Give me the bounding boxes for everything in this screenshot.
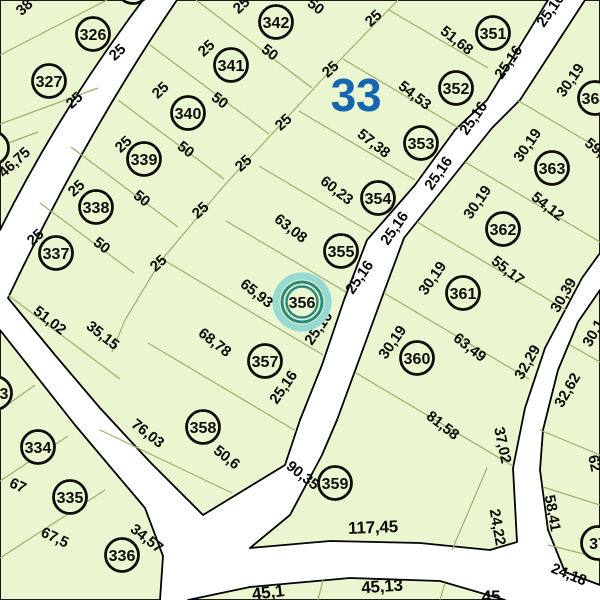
parcel-number: 342 — [263, 15, 290, 32]
parcel-number: 357 — [252, 354, 279, 371]
parcel-number: 333 — [0, 386, 8, 403]
parcel-marker-337[interactable]: 337 — [40, 237, 73, 270]
parcel-marker-340[interactable]: 340 — [172, 97, 205, 130]
parcel-number: 338 — [83, 200, 110, 217]
parcel-marker-334[interactable]: 334 — [22, 431, 55, 464]
parcel-number: 363 — [539, 161, 566, 178]
parcel-number: 364 — [582, 91, 600, 108]
parcel-number: 352 — [443, 81, 470, 98]
parcel-marker-335[interactable]: 335 — [54, 481, 87, 514]
parcel-marker-359[interactable]: 359 — [319, 467, 352, 500]
parcel-marker-339[interactable]: 339 — [128, 143, 161, 176]
parcel-marker-361[interactable]: 361 — [447, 277, 480, 310]
parcel-number: 326 — [80, 27, 107, 44]
parcel-number: 327 — [36, 74, 63, 91]
selected-parcel-marker[interactable]: 356 — [276, 276, 328, 328]
parcel-number: 359 — [322, 476, 349, 493]
parcel-marker-358[interactable]: 358 — [187, 411, 220, 444]
block-number-label: 33 — [331, 69, 382, 121]
parcel-number: 334 — [25, 440, 52, 457]
parcel-number: 358 — [190, 420, 217, 437]
parcel-marker-355[interactable]: 355 — [325, 235, 358, 268]
parcel-marker-364[interactable]: 364 — [579, 82, 600, 115]
parcel-number: 353 — [408, 136, 435, 153]
parcel-number: 340 — [175, 106, 202, 123]
parcel-number: 37 — [589, 536, 600, 553]
parcel-number: 337 — [43, 246, 70, 263]
parcel-number: 336 — [109, 548, 136, 565]
parcel-marker-338[interactable]: 338 — [80, 191, 113, 224]
parcel-number: 362 — [490, 222, 517, 239]
dimension-label: 45,1 — [251, 581, 285, 600]
parcel-marker-327[interactable]: 327 — [33, 65, 66, 98]
parcel-marker-354[interactable]: 354 — [362, 182, 395, 215]
parcel-marker-326[interactable]: 326 — [77, 18, 110, 51]
parcel-marker-342[interactable]: 342 — [260, 6, 293, 39]
dimension-label: 117,45 — [348, 517, 398, 538]
parcel-marker-360[interactable]: 360 — [401, 342, 434, 375]
parcel-marker-362[interactable]: 362 — [487, 213, 520, 246]
parcel-number: 351 — [480, 26, 507, 43]
parcel-number: 361 — [450, 286, 477, 303]
cadastral-map-viewport[interactable]: 38252546,7525252525252525252525252550505… — [0, 0, 600, 600]
parcel-marker-353[interactable]: 353 — [405, 127, 438, 160]
parcel-marker-341[interactable]: 341 — [215, 49, 248, 82]
parcel-number: 355 — [328, 244, 355, 261]
parcel-number: 341 — [218, 58, 245, 75]
parcel-marker-352[interactable]: 352 — [440, 72, 473, 105]
parcel-number: 356 — [289, 295, 316, 312]
parcel-number: 360 — [404, 351, 431, 368]
parcel-marker-363[interactable]: 363 — [536, 152, 569, 185]
parcel-number: 354 — [365, 191, 392, 208]
parcel-number: 339 — [131, 152, 158, 169]
dimension-label: 45,13 — [361, 576, 404, 598]
parcel-marker-357[interactable]: 357 — [249, 345, 282, 378]
dimension-label: 45 — [482, 587, 501, 600]
parcel-number: 335 — [57, 490, 84, 507]
parcel-marker-336[interactable]: 336 — [106, 539, 139, 572]
block-bottom — [188, 578, 505, 600]
parcel-marker-351[interactable]: 351 — [477, 17, 510, 50]
cadastral-map[interactable]: 38252546,7525252525252525252525252550505… — [0, 0, 600, 600]
